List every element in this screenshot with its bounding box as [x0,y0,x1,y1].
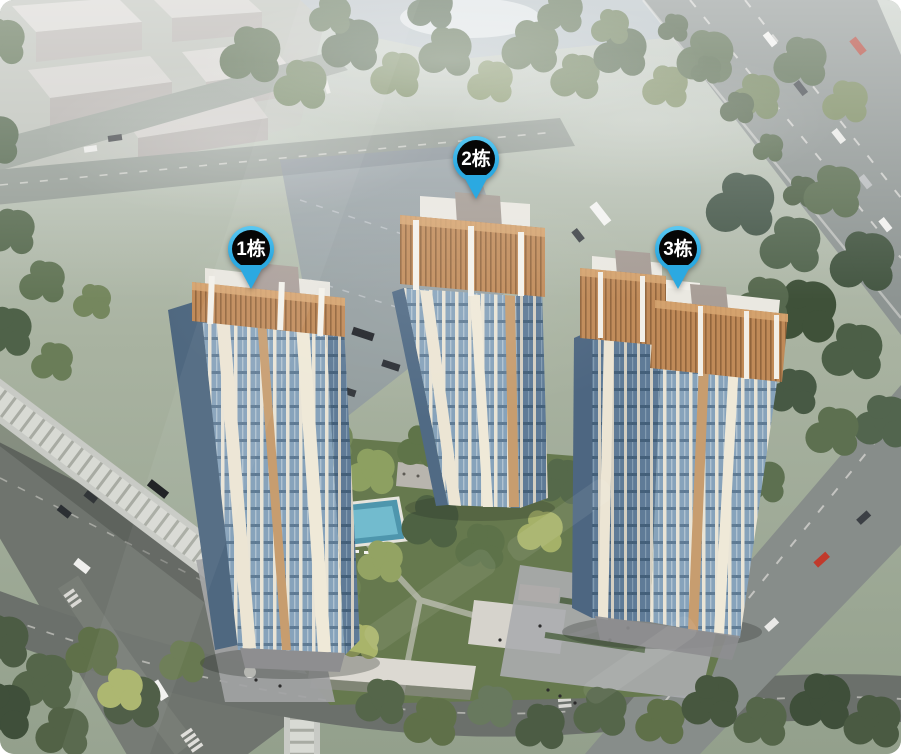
aerial-render-canvas: 1栋 2栋 3栋 [0,0,901,754]
marker-pointer-icon [665,265,691,289]
building-marker-2[interactable]: 2栋 [450,136,502,199]
marker-pointer-icon [463,175,489,199]
building-marker-1[interactable]: 1栋 [225,226,277,289]
marker-pointer-icon [238,265,264,289]
marker-label: 2栋 [457,140,495,178]
marker-label: 1栋 [232,230,270,268]
aerial-photo [0,0,901,754]
building-marker-3[interactable]: 3栋 [652,226,704,289]
marker-label: 3栋 [659,230,697,268]
